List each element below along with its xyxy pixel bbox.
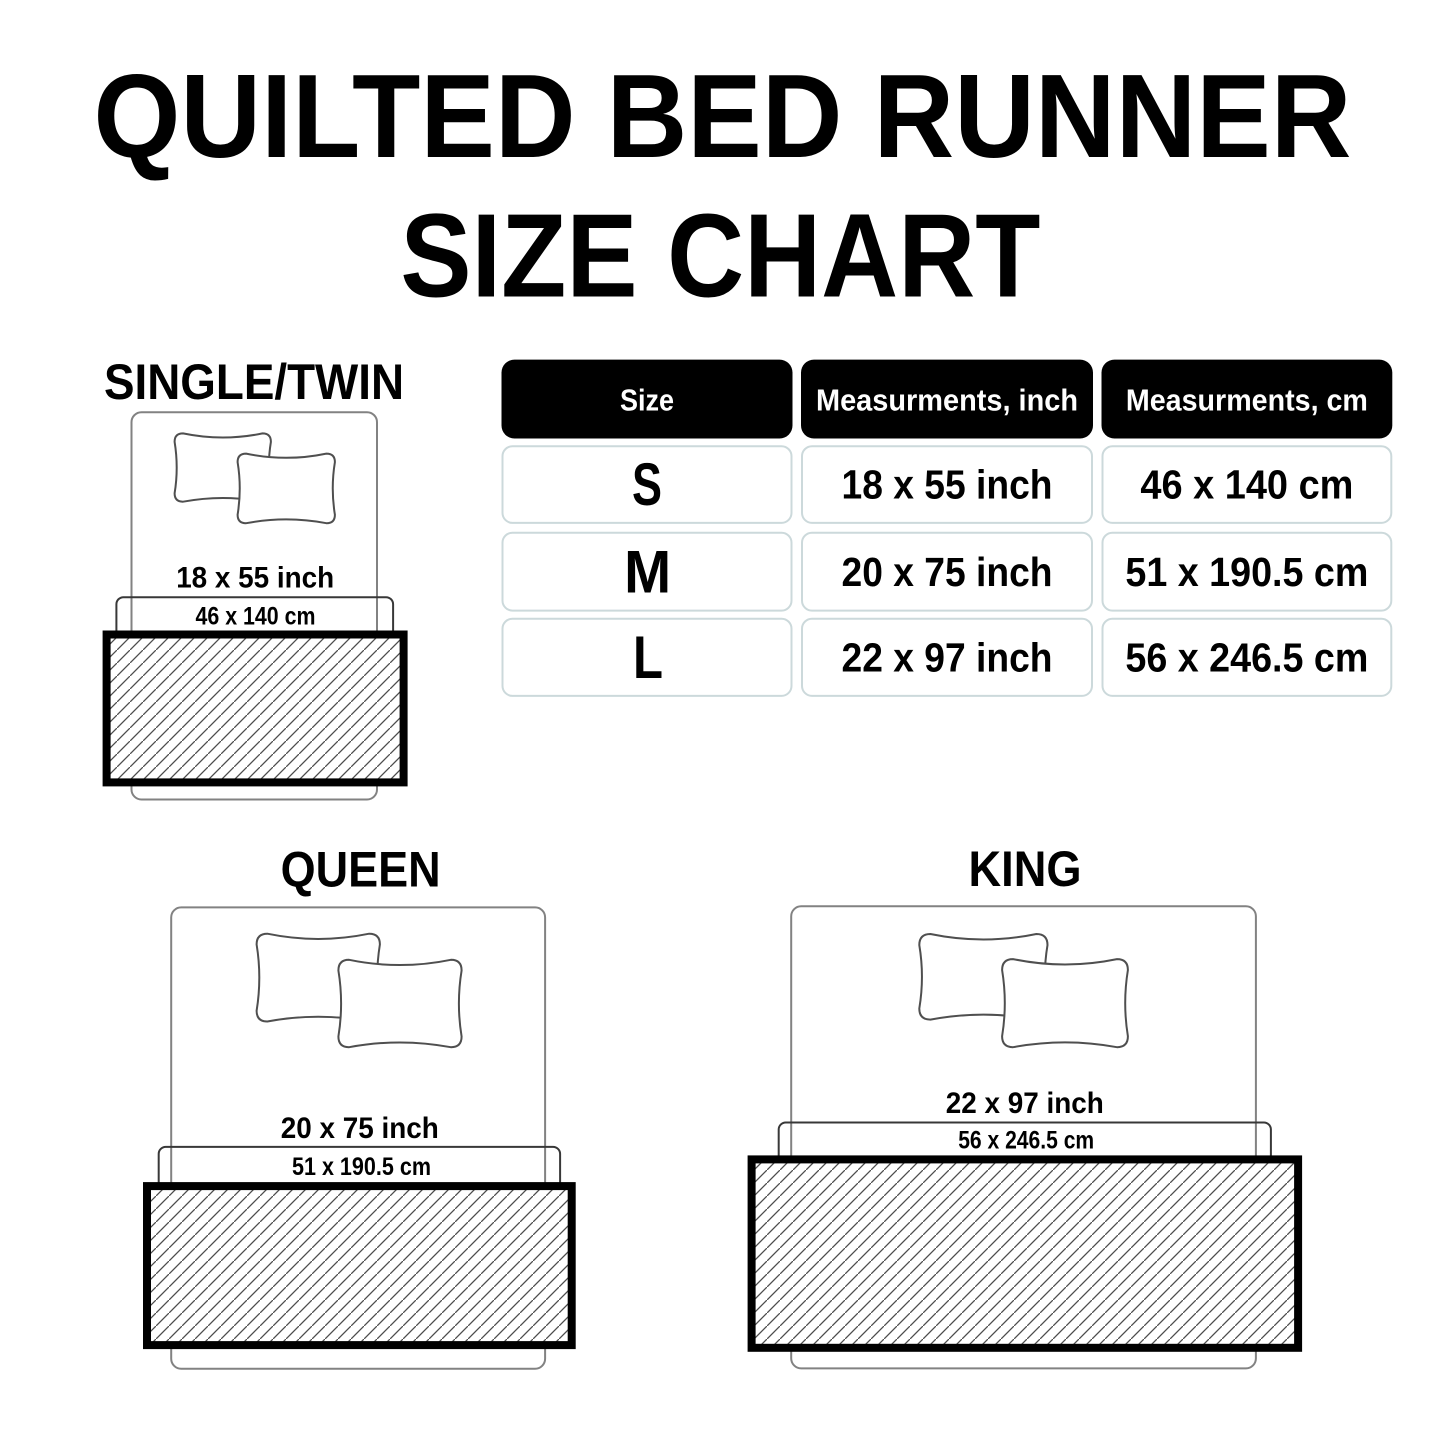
svg-text:46 x 140 cm: 46 x 140 cm bbox=[1140, 462, 1353, 508]
svg-text:Measurments, cm: Measurments, cm bbox=[1126, 383, 1368, 418]
svg-text:QUILTED BED RUNNER: QUILTED BED RUNNER bbox=[94, 50, 1352, 183]
svg-text:22 x 97 inch: 22 x 97 inch bbox=[946, 1087, 1104, 1120]
svg-text:56 x 246.5 cm: 56 x 246.5 cm bbox=[958, 1127, 1094, 1155]
svg-text:18 x 55 inch: 18 x 55 inch bbox=[176, 561, 334, 594]
svg-text:20 x 75 inch: 20 x 75 inch bbox=[281, 1112, 439, 1145]
svg-text:L: L bbox=[633, 624, 663, 691]
svg-text:46 x 140 cm: 46 x 140 cm bbox=[196, 603, 316, 631]
svg-text:Size: Size bbox=[620, 383, 674, 418]
svg-text:18 x 55 inch: 18 x 55 inch bbox=[842, 462, 1053, 508]
svg-text:20 x 75 inch: 20 x 75 inch bbox=[842, 549, 1053, 595]
svg-text:QUEEN: QUEEN bbox=[281, 842, 441, 898]
svg-text:22 x 97 inch: 22 x 97 inch bbox=[842, 634, 1053, 680]
svg-text:51 x 190.5 cm: 51 x 190.5 cm bbox=[1125, 549, 1368, 595]
svg-text:SIZE CHART: SIZE CHART bbox=[400, 190, 1040, 323]
svg-text:51 x 190.5 cm: 51 x 190.5 cm bbox=[292, 1153, 431, 1181]
svg-text:S: S bbox=[632, 451, 662, 518]
svg-text:M: M bbox=[624, 538, 671, 605]
svg-text:56 x 246.5 cm: 56 x 246.5 cm bbox=[1125, 634, 1368, 680]
svg-text:SINGLE/TWIN: SINGLE/TWIN bbox=[104, 354, 404, 410]
svg-text:KING: KING bbox=[969, 841, 1082, 897]
svg-text:Measurments, inch: Measurments, inch bbox=[816, 383, 1078, 418]
